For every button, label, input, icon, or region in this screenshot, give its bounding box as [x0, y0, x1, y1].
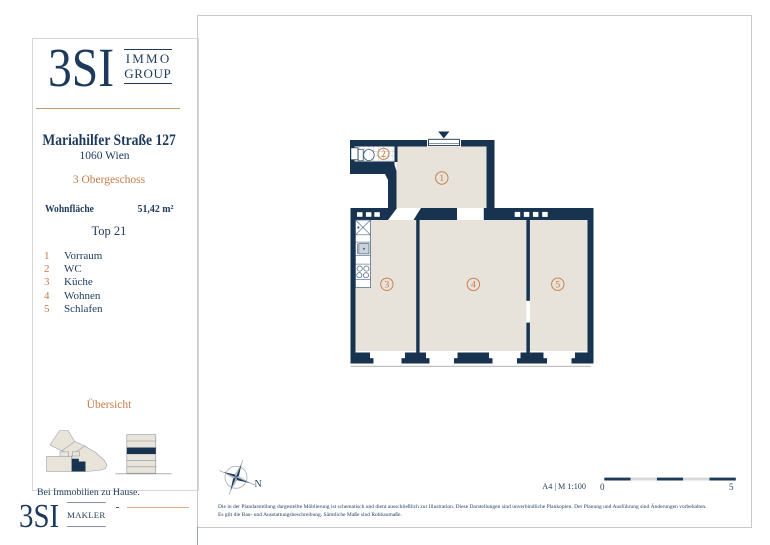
svg-text:2: 2 — [381, 150, 386, 160]
svg-text:4: 4 — [471, 281, 476, 291]
svg-text:3: 3 — [385, 281, 390, 291]
svg-text:1: 1 — [439, 174, 444, 184]
svg-text:5: 5 — [555, 280, 560, 290]
